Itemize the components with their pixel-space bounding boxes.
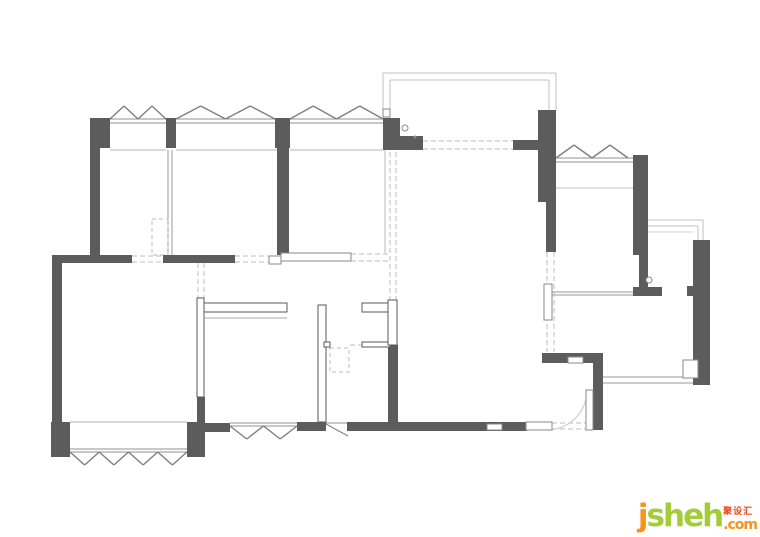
partition-walls-layer xyxy=(197,298,397,422)
floor-plan-page: jsheh 聚设汇 .com xyxy=(0,0,760,537)
door-swing-layer xyxy=(547,362,697,430)
jsheh-logo-text: jsheh xyxy=(638,501,722,532)
logo-j: j xyxy=(638,498,647,534)
logo-right-block: 聚设汇 .com xyxy=(723,508,757,532)
logo-sheh: sheh xyxy=(647,498,723,534)
logo-tld-text: .com xyxy=(723,518,757,532)
jsheh-watermark: jsheh 聚设汇 .com xyxy=(638,501,757,532)
logo-cjk-text: 聚设汇 xyxy=(723,508,753,517)
floor-plan-drawing xyxy=(0,0,760,537)
